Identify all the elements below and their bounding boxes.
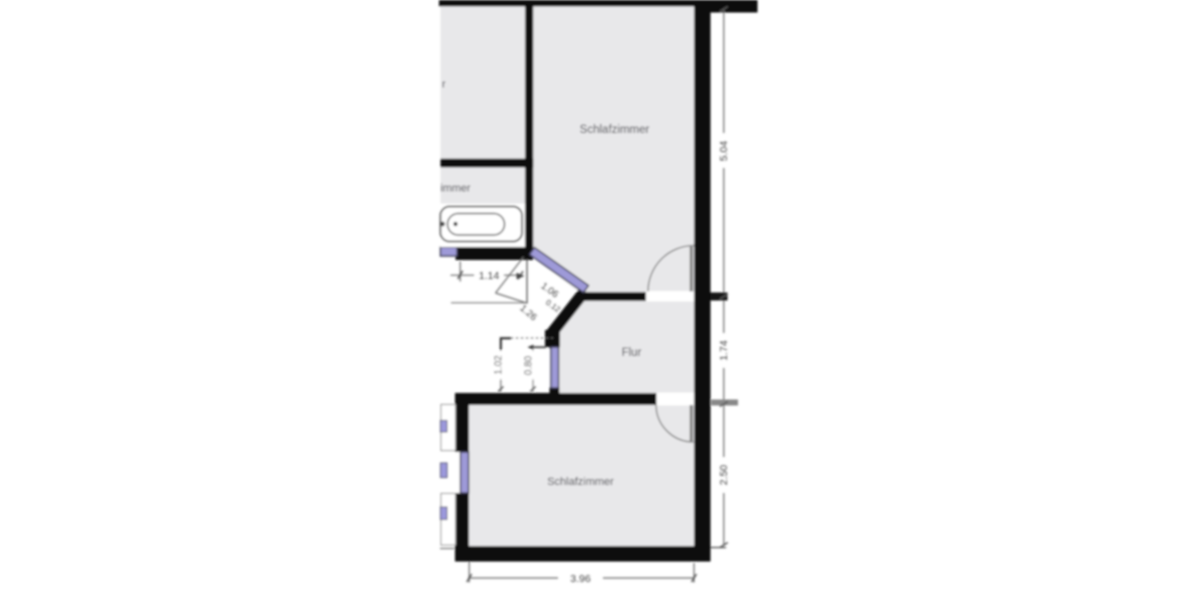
svg-text:Flur: Flur (622, 347, 642, 359)
svg-text:3.96: 3.96 (570, 573, 591, 585)
svg-text:Schlafzimmer: Schlafzimmer (547, 476, 614, 488)
svg-text:5.04: 5.04 (718, 141, 730, 162)
svg-text:2.50: 2.50 (718, 465, 730, 486)
svg-text:1.74: 1.74 (718, 340, 730, 361)
svg-text:1.02: 1.02 (494, 355, 505, 375)
svg-text:0.80: 0.80 (524, 355, 535, 375)
svg-text:r: r (442, 79, 446, 91)
svg-text:1.14: 1.14 (479, 270, 500, 282)
svg-text:Schlafzimmer: Schlafzimmer (580, 124, 650, 136)
svg-text:immer: immer (441, 183, 471, 195)
